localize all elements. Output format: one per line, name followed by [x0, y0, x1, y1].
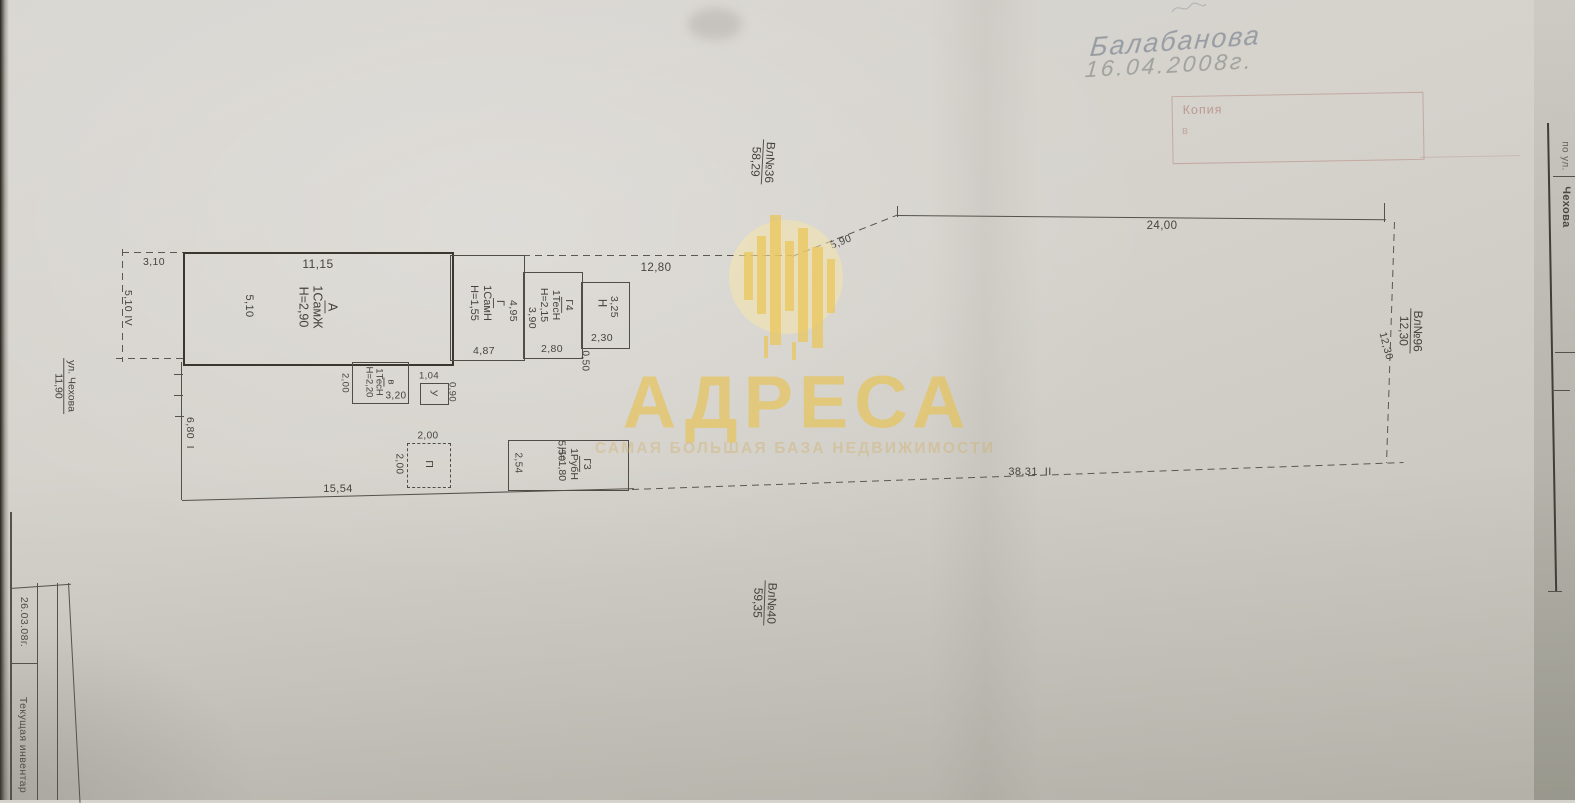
titleblock-hline-2: [10, 663, 37, 664]
tick-left-3: [175, 416, 184, 417]
titleblock-vline-1: [10, 512, 12, 800]
dim-g4-bottom: 2,80: [541, 343, 563, 355]
plot-label-top: Вл№36 58,29: [747, 139, 777, 186]
dim-v-left: 2,00: [340, 373, 351, 393]
titleblock-vline-3: [57, 583, 58, 800]
tick-top-right-corner: [1384, 203, 1385, 222]
titleblock-caption: Текущая инвентар: [17, 697, 29, 793]
dim-g3-top: 5,50: [556, 440, 567, 461]
sidepage-divider-3: [1554, 390, 1570, 391]
building-P-label: П: [422, 460, 434, 468]
stamp-line2: в: [1182, 125, 1188, 137]
dim-n-offset: 0,50: [580, 350, 591, 371]
dim-top-right: 24,00: [1147, 220, 1178, 232]
tick-left-2: [174, 395, 183, 396]
plot-label-bottom: Вл№40 59,35: [749, 580, 778, 626]
building-G-label: Г 1СамН Н=1,55: [468, 285, 506, 321]
sidepage-label: по ул.: [1560, 141, 1571, 171]
dim-a-top: 11,15: [302, 257, 333, 271]
street-label: ул. Чехова 11,90: [52, 358, 77, 414]
building-A-label: А 1СамЖ Н=2,90: [297, 285, 340, 328]
dim-p-left: 2,00: [394, 453, 405, 474]
building-G4-label: Г4 1ТесН Н=2,15: [538, 288, 574, 322]
tick-left-1: [174, 374, 183, 375]
boundary-top-dashed: [523, 255, 792, 256]
dim-bottom-bound: 38,31 II: [1008, 466, 1051, 478]
stamp-line1: Копия: [1183, 102, 1223, 117]
dim-n-right: 3,25: [608, 296, 620, 318]
building-U-label: У: [427, 390, 438, 396]
titleblock-date: 26.03.08г.: [18, 597, 30, 647]
dim-u-top: 1,04: [419, 371, 439, 382]
plot-label-right: Вл№96 12,30: [1396, 308, 1425, 354]
stamp-box: Копия в: [1171, 92, 1424, 164]
dim-g4-left: 3,90: [526, 307, 538, 329]
titleblock-vline-2: [37, 583, 38, 800]
dim-g-right: 4,95: [507, 300, 519, 322]
sidepage-street: Чехова: [1560, 186, 1572, 227]
dim-u-right: 0,90: [447, 382, 458, 402]
dim-g-bottom: 4,87: [473, 345, 495, 357]
aux-dashed-top: [122, 252, 183, 253]
dim-p-top: 2,00: [417, 431, 438, 442]
sidepage-frame-end: [1548, 591, 1562, 592]
boundary-left-solid: [181, 362, 182, 500]
dim-a-left: 5,10: [243, 294, 255, 317]
aux-dashed-bottom: [116, 358, 183, 359]
dim-top-mid: 12,80: [641, 262, 672, 274]
dim-g3-left: 2,54: [513, 452, 524, 473]
dim-bottom-left: 15,54: [323, 483, 353, 495]
dim-left-bound: 6,80 I: [184, 417, 196, 449]
dim-aux-width: 3,10: [143, 256, 165, 268]
sidepage-divider-2: [1555, 352, 1575, 353]
building-N-label: Н: [595, 299, 608, 307]
dim-n-bottom: 2,30: [591, 332, 613, 344]
handwritten-mark: [1168, 0, 1208, 18]
dim-aux-depth: 5,10 IV: [122, 290, 134, 326]
dim-v-bottom: 3,20: [385, 391, 406, 402]
tick-bend: [897, 206, 898, 217]
sidepage-divider-1: [1553, 176, 1575, 177]
